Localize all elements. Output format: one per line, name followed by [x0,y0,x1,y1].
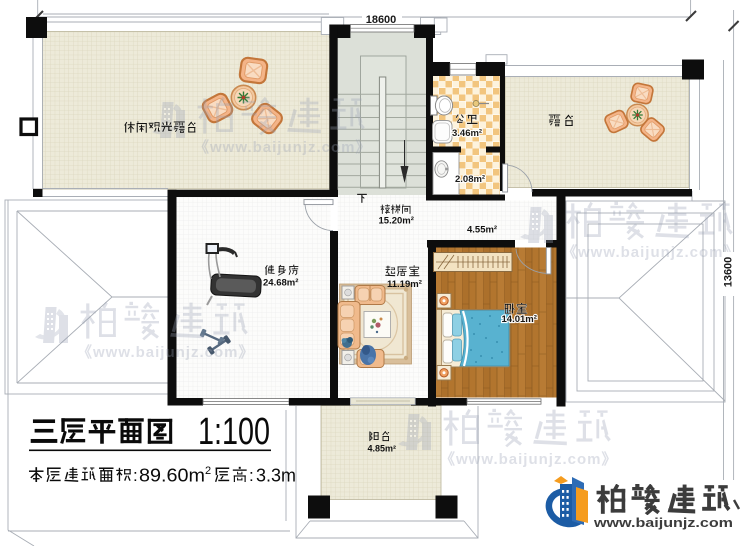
svg-text:1:100: 1:100 [198,411,270,453]
svg-text:2.08m²: 2.08m² [455,174,485,185]
svg-text:4.85m²: 4.85m² [368,444,397,454]
svg-text:4.55m²: 4.55m² [467,225,497,236]
svg-text:3.46m²: 3.46m² [452,128,482,139]
svg-text:15.20m²: 15.20m² [379,216,414,227]
svg-text:89.60m: 89.60m [139,466,205,486]
svg-text:www.baijunjz.com: www.baijunjz.com [593,516,733,530]
svg-text::: : [249,466,254,485]
svg-text:11.19m²: 11.19m² [387,279,422,290]
svg-text:2: 2 [205,465,211,477]
svg-text:14.01m²: 14.01m² [502,314,537,325]
svg-text::: : [133,466,138,485]
svg-text:24.68m²: 24.68m² [263,278,298,289]
svg-text:18600: 18600 [366,14,397,26]
svg-text:3.3m: 3.3m [256,466,296,486]
svg-text:13600: 13600 [723,257,735,288]
